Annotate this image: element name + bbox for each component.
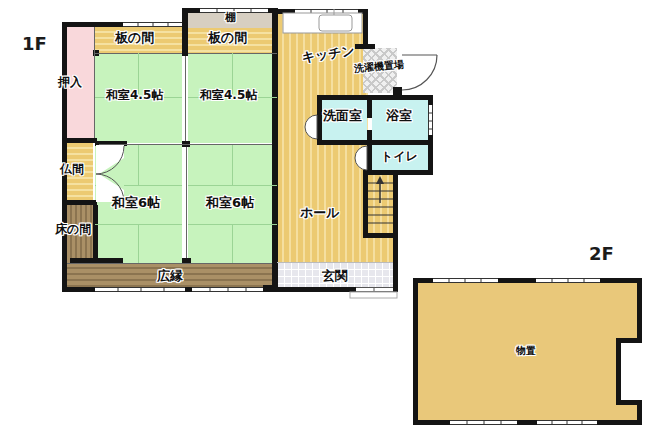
label-butsuma: 仏間 (60, 163, 84, 176)
window-2f-top-2 (536, 278, 600, 283)
window-itanoma-top (123, 22, 182, 27)
label-tokonoma: 床の間 (55, 223, 91, 236)
stairs-up-arrow-icon (376, 176, 384, 184)
window-2f-top-1 (433, 278, 498, 283)
label-genkan: 玄関 (322, 269, 348, 283)
notch-2f (616, 338, 649, 405)
window-2f-bottom-1 (450, 420, 517, 425)
windows-layer (95, 8, 600, 425)
kitchen-counter (283, 9, 362, 33)
door-back-entrance (402, 55, 437, 90)
door-arcs (96, 55, 437, 202)
window-2f-bottom-2 (537, 420, 597, 425)
door-toilet (355, 146, 367, 170)
floor2-label: 2F (589, 244, 614, 264)
label-washitsu45-right: 和室4.5帖 (200, 89, 257, 102)
label-senmenshitsu: 洗面室 (323, 109, 362, 123)
label-monooki: 物置 (516, 345, 536, 356)
window-bath-right (428, 105, 433, 135)
window-hiroen-bottom-left (95, 287, 185, 292)
label-washitsu6-right: 和室6帖 (206, 196, 254, 210)
floor1-label: 1F (22, 34, 47, 54)
entrance-door (350, 287, 397, 298)
door-senmenshitsu (305, 115, 317, 139)
label-itanoma-right: 板の間 (208, 31, 247, 45)
double-door-washitsu (96, 145, 124, 202)
label-toilet: トイレ (381, 150, 418, 163)
floorplan-canvas: 1F 2F 押入 板の間 棚 板の間 キッチン 洗濯機置場 和室4.5帖 和室4… (0, 0, 649, 439)
staircase (368, 176, 393, 223)
label-washitsu45-left: 和室4.5帖 (106, 89, 163, 102)
label-hiroen: 広縁 (157, 269, 183, 283)
label-tana: 棚 (225, 12, 236, 24)
label-hall: ホール (300, 206, 340, 220)
window-hiroen-bottom-right (192, 287, 263, 292)
walls-layer (62, 8, 642, 425)
label-oshiire: 押入 (58, 76, 82, 89)
label-washitsu6-left: 和室6帖 (112, 196, 160, 210)
label-yokushitsu: 浴室 (386, 109, 412, 123)
label-itanoma-left: 板の間 (115, 31, 154, 45)
